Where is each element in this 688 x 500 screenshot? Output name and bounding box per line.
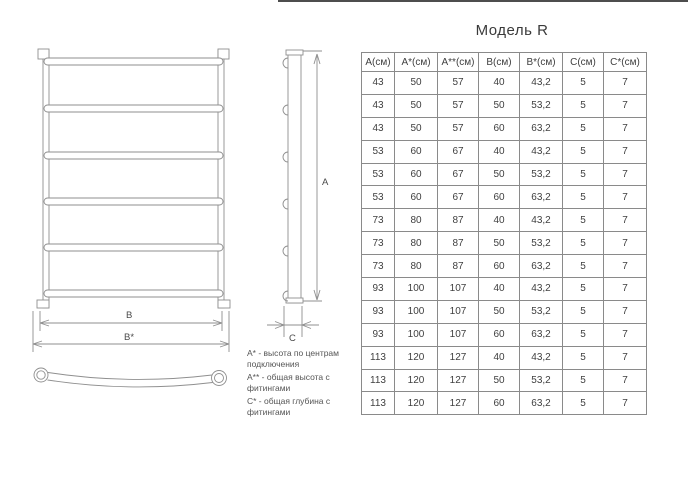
table-cell: 7	[604, 94, 647, 117]
rung	[44, 105, 223, 112]
legend-item: А** - общая высота с фитингами	[247, 372, 365, 394]
table-cell: 7	[604, 255, 647, 278]
table-cell: 87	[438, 255, 479, 278]
technical-drawing: В В*	[0, 0, 360, 500]
column-header: С(см)	[563, 53, 604, 72]
table-row: 7380875053,257	[362, 232, 647, 255]
table-cell: 5	[563, 300, 604, 323]
table-cell: 127	[438, 369, 479, 392]
dimension-label-c: С	[289, 333, 296, 344]
table-cell: 113	[362, 369, 395, 392]
table-cell: 67	[438, 140, 479, 163]
table-cell: 43,2	[520, 346, 563, 369]
table-cell: 5	[563, 209, 604, 232]
table-cell: 73	[362, 255, 395, 278]
table-cell: 60	[395, 186, 438, 209]
table-cell: 63,2	[520, 255, 563, 278]
legend-item: С* - общая глубина с фитингами	[247, 396, 365, 418]
table-cell: 60	[395, 140, 438, 163]
rung	[44, 244, 223, 251]
table-cell: 53	[362, 163, 395, 186]
rung	[44, 58, 223, 65]
legend-item: А* - высота по центрам подключения	[247, 348, 365, 370]
table-cell: 40	[479, 278, 520, 301]
table-body: 4350574043,2574350575053,2574350576063,2…	[362, 72, 647, 415]
table-cell: 67	[438, 186, 479, 209]
table-cell: 93	[362, 323, 395, 346]
left-top-cap	[38, 49, 49, 59]
table-row: 931001075053,257	[362, 300, 647, 323]
table-cell: 120	[395, 369, 438, 392]
table-row: 5360674043,257	[362, 140, 647, 163]
table-cell: 50	[479, 300, 520, 323]
dimension-label-a: А	[322, 177, 329, 188]
table-cell: 50	[479, 163, 520, 186]
table-cell: 7	[604, 163, 647, 186]
table-cell: 53,2	[520, 94, 563, 117]
table-cell: 40	[479, 72, 520, 95]
table-cell: 7	[604, 392, 647, 415]
rail-end-ring	[34, 368, 48, 382]
table-cell: 60	[479, 323, 520, 346]
table-cell: 5	[563, 392, 604, 415]
table-row: 931001076063,257	[362, 323, 647, 346]
table-row: 1131201274043,257	[362, 346, 647, 369]
table-cell: 43	[362, 117, 395, 140]
table-row: 5360675053,257	[362, 163, 647, 186]
table-cell: 43,2	[520, 72, 563, 95]
table-cell: 50	[395, 72, 438, 95]
table-cell: 127	[438, 392, 479, 415]
table-cell: 40	[479, 140, 520, 163]
table-row: 4350574043,257	[362, 72, 647, 95]
left-foot	[37, 300, 49, 308]
dimension-b: В	[40, 310, 222, 331]
table-cell: 60	[479, 117, 520, 140]
table-cell: 57	[438, 72, 479, 95]
spec-sheet-page: Модель R В	[0, 0, 688, 500]
table-cell: 43,2	[520, 278, 563, 301]
table-cell: 107	[438, 323, 479, 346]
table-cell: 100	[395, 278, 438, 301]
table-cell: 63,2	[520, 117, 563, 140]
rung-ends	[283, 58, 288, 301]
table-cell: 7	[604, 72, 647, 95]
table-cell: 53,2	[520, 163, 563, 186]
table-cell: 5	[563, 72, 604, 95]
side-top-cap	[286, 50, 303, 55]
table-cell: 7	[604, 209, 647, 232]
table-cell: 43,2	[520, 140, 563, 163]
table-row: 7380874043,257	[362, 209, 647, 232]
table-cell: 5	[563, 232, 604, 255]
table-row: 931001074043,257	[362, 278, 647, 301]
table-cell: 60	[479, 392, 520, 415]
side-bottom-cap	[286, 298, 303, 303]
right-top-cap	[218, 49, 229, 59]
column-header: В*(см)	[520, 53, 563, 72]
table-cell: 60	[479, 255, 520, 278]
table-cell: 113	[362, 392, 395, 415]
table-cell: 7	[604, 300, 647, 323]
side-post	[288, 52, 301, 303]
dimension-a: А	[314, 54, 329, 300]
table-cell: 7	[604, 323, 647, 346]
right-post	[218, 50, 224, 308]
table-cell: 93	[362, 278, 395, 301]
table-cell: 5	[563, 255, 604, 278]
table-cell: 60	[479, 186, 520, 209]
curved-tube-bottom-edge	[48, 380, 213, 387]
table-cell: 80	[395, 255, 438, 278]
curved-rail-detail	[34, 368, 227, 387]
table-cell: 43,2	[520, 209, 563, 232]
table-cell: 7	[604, 369, 647, 392]
table-cell: 60	[395, 163, 438, 186]
table-cell: 87	[438, 209, 479, 232]
table-cell: 100	[395, 300, 438, 323]
table-cell: 53	[362, 186, 395, 209]
table-row: 1131201275053,257	[362, 369, 647, 392]
rail-end-ring-inner	[215, 374, 224, 383]
table-cell: 80	[395, 209, 438, 232]
table-cell: 7	[604, 346, 647, 369]
table-cell: 107	[438, 278, 479, 301]
table-cell: 127	[438, 346, 479, 369]
rail-end-ring-inner	[37, 371, 45, 379]
table-cell: 5	[563, 94, 604, 117]
table-header: А(см)А*(см)А**(см)В(см)В*(см)С(см)С*(см)	[362, 53, 647, 72]
rung	[44, 290, 223, 297]
left-post	[43, 50, 49, 308]
table-row: 1131201276063,257	[362, 392, 647, 415]
table-header-row: А(см)А*(см)А**(см)В(см)В*(см)С(см)С*(см)	[362, 53, 647, 72]
table-cell: 57	[438, 94, 479, 117]
table-cell: 7	[604, 140, 647, 163]
dimensions-table: А(см)А*(см)А**(см)В(см)В*(см)С(см)С*(см)…	[361, 52, 647, 415]
table-cell: 5	[563, 369, 604, 392]
table-cell: 100	[395, 323, 438, 346]
table-row: 4350576063,257	[362, 117, 647, 140]
table-cell: 5	[563, 323, 604, 346]
table-cell: 53,2	[520, 369, 563, 392]
table-cell: 50	[479, 232, 520, 255]
table-cell: 50	[479, 94, 520, 117]
column-header: А*(см)	[395, 53, 438, 72]
table-cell: 5	[563, 346, 604, 369]
page-title: Модель R	[373, 22, 651, 39]
table-cell: 63,2	[520, 186, 563, 209]
column-header: В(см)	[479, 53, 520, 72]
dimension-label-b: В	[126, 310, 132, 321]
table-cell: 63,2	[520, 392, 563, 415]
table-cell: 67	[438, 163, 479, 186]
table-cell: 53,2	[520, 232, 563, 255]
column-header: А(см)	[362, 53, 395, 72]
table-cell: 40	[479, 209, 520, 232]
table-cell: 87	[438, 232, 479, 255]
dimension-c: С	[267, 306, 319, 344]
table-cell: 7	[604, 117, 647, 140]
side-view: А С	[267, 50, 329, 344]
table-cell: 50	[479, 369, 520, 392]
table-cell: 120	[395, 346, 438, 369]
right-foot	[218, 300, 230, 308]
table-row: 5360676063,257	[362, 186, 647, 209]
table-cell: 80	[395, 232, 438, 255]
table-cell: 73	[362, 209, 395, 232]
table-cell: 7	[604, 278, 647, 301]
table-cell: 57	[438, 117, 479, 140]
table-cell: 113	[362, 346, 395, 369]
table-cell: 50	[395, 117, 438, 140]
table-cell: 5	[563, 163, 604, 186]
table-cell: 5	[563, 278, 604, 301]
rung	[44, 152, 223, 159]
curved-tube-top-edge	[48, 373, 212, 380]
table-cell: 5	[563, 117, 604, 140]
table-cell: 7	[604, 186, 647, 209]
table-cell: 5	[563, 186, 604, 209]
table-cell: 43	[362, 94, 395, 117]
table-cell: 53	[362, 140, 395, 163]
rail-end-ring	[212, 371, 227, 386]
table-cell: 7	[604, 232, 647, 255]
front-view: В В*	[33, 49, 230, 352]
table-row: 4350575053,257	[362, 94, 647, 117]
table-cell: 43	[362, 72, 395, 95]
legend: А* - высота по центрам подключения А** -…	[247, 348, 365, 420]
table-cell: 40	[479, 346, 520, 369]
table-cell: 50	[395, 94, 438, 117]
table-cell: 53,2	[520, 300, 563, 323]
table-cell: 63,2	[520, 323, 563, 346]
rung	[44, 198, 223, 205]
column-header: А**(см)	[438, 53, 479, 72]
column-header: С*(см)	[604, 53, 647, 72]
table-row: 7380876063,257	[362, 255, 647, 278]
table-cell: 120	[395, 392, 438, 415]
table-cell: 5	[563, 140, 604, 163]
dimension-label-b-star: В*	[124, 332, 134, 343]
table-cell: 73	[362, 232, 395, 255]
table-cell: 107	[438, 300, 479, 323]
table-cell: 93	[362, 300, 395, 323]
